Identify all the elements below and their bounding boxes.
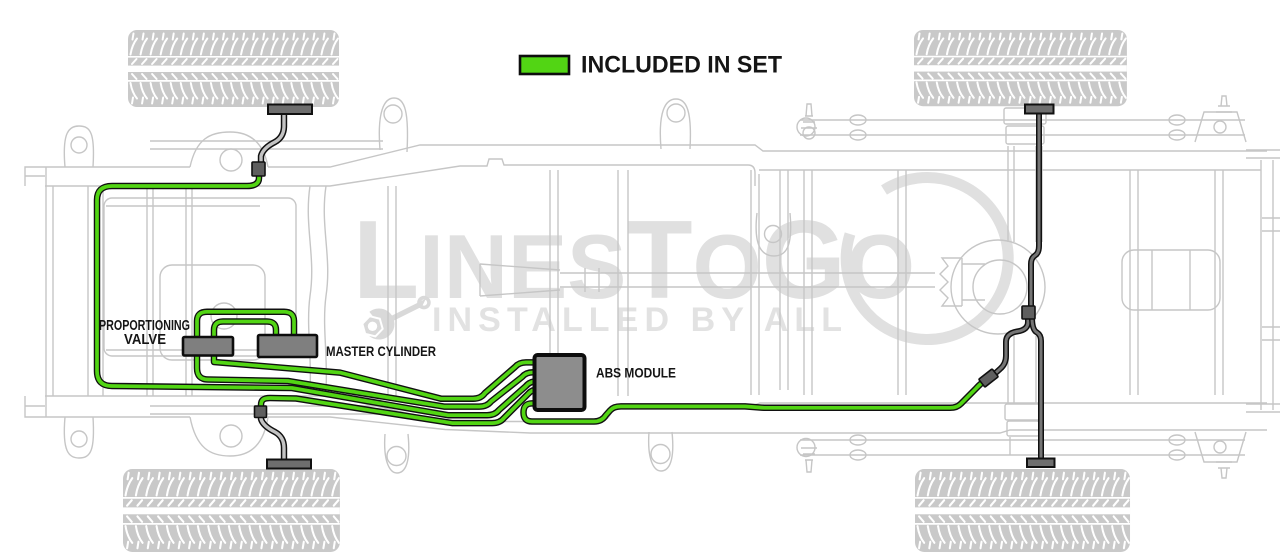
svg-text:VALVE: VALVE (124, 332, 166, 348)
svg-text:ABS MODULE: ABS MODULE (596, 365, 676, 381)
svg-text:INCLUDED IN SET: INCLUDED IN SET (581, 52, 782, 79)
svg-text:MASTER CYLINDER: MASTER CYLINDER (326, 343, 436, 359)
